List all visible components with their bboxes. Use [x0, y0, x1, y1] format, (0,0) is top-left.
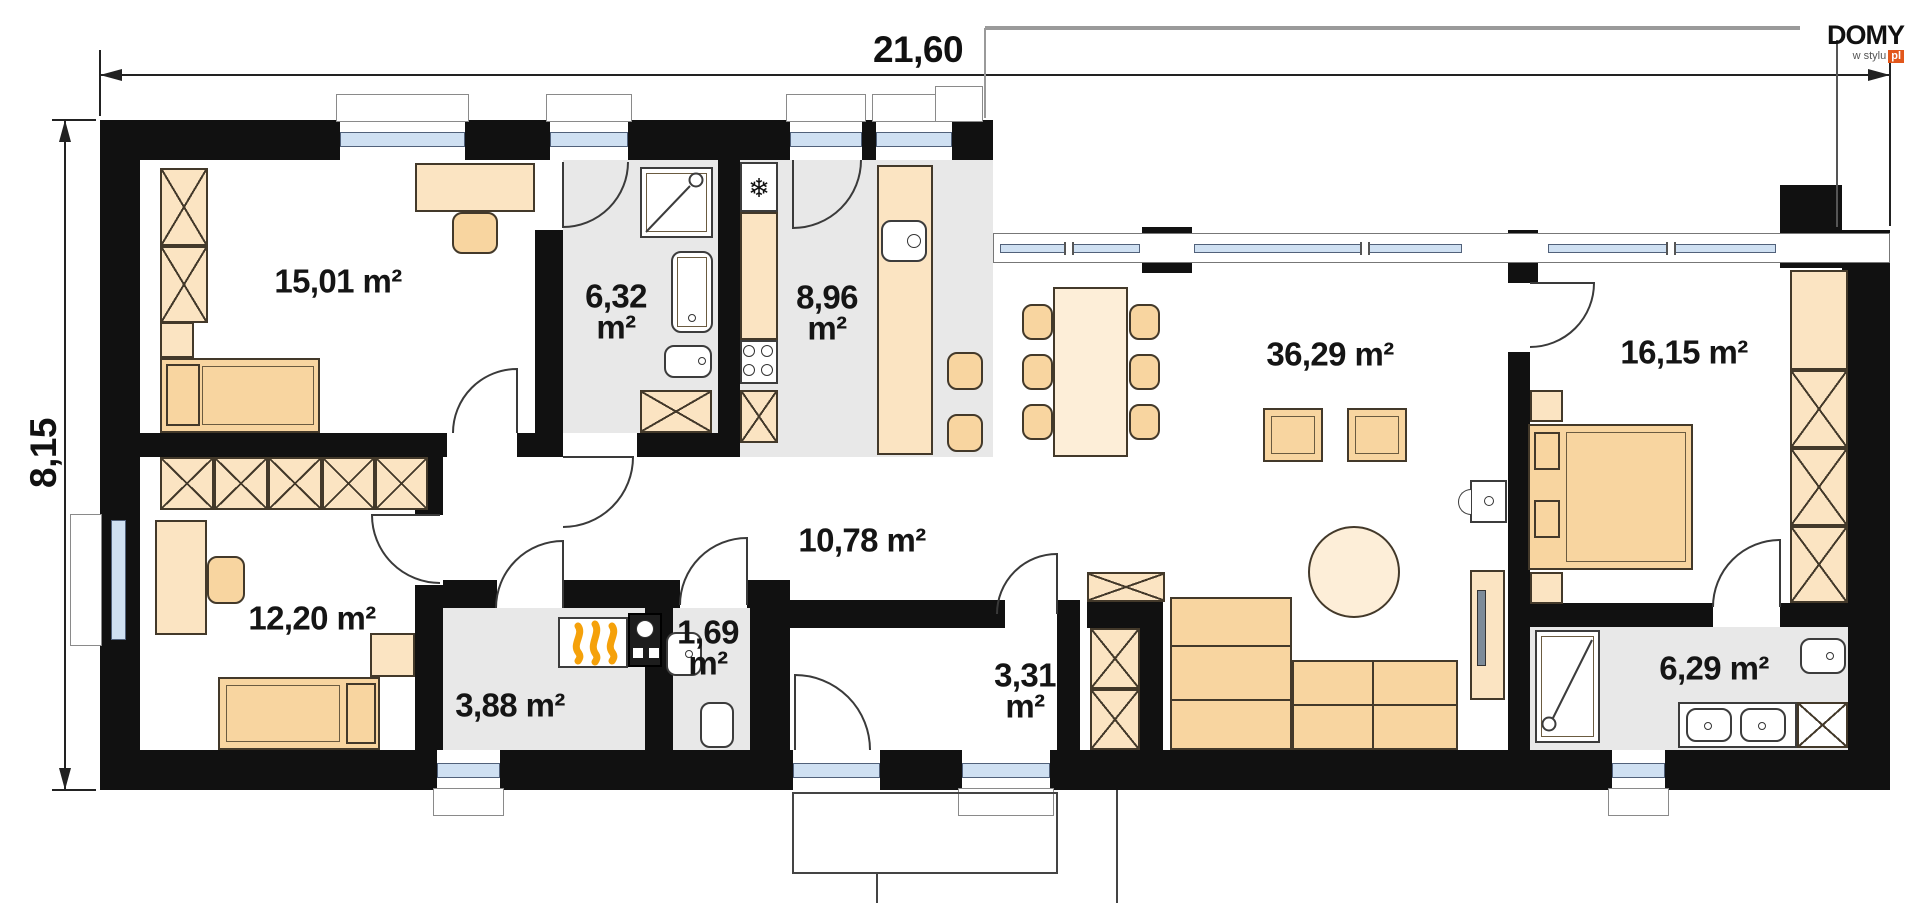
- window-mullion: [1360, 242, 1370, 255]
- wardrobe: [322, 457, 375, 510]
- wall: [628, 120, 790, 160]
- pillow: [166, 364, 200, 426]
- dimension-label-height: 8,15: [23, 418, 65, 488]
- dining-chair: [1129, 354, 1160, 390]
- window-sill: [786, 94, 866, 122]
- window: [550, 132, 628, 147]
- window: [790, 132, 862, 147]
- wardrobe: [375, 457, 428, 510]
- wall: [880, 750, 962, 790]
- bar-stool: [947, 414, 983, 452]
- wall: [718, 160, 740, 457]
- dining-chair: [1022, 404, 1053, 440]
- window-mullion: [1064, 242, 1074, 255]
- desk: [155, 520, 207, 635]
- wall: [790, 600, 1005, 628]
- entry-wardrobe: [1090, 689, 1140, 750]
- wall: [1087, 600, 1163, 628]
- kitchen-cabinet: [740, 390, 778, 443]
- wall: [1665, 750, 1890, 790]
- logo-tagline: w stylu: [1853, 51, 1887, 62]
- wall: [140, 433, 447, 457]
- window: [962, 763, 1050, 778]
- bar-stool: [947, 352, 983, 390]
- room-area-label-hall: 10,78 m²: [798, 524, 925, 555]
- wardrobe: [214, 457, 268, 510]
- window: [111, 520, 126, 640]
- entry-wardrobe: [1090, 628, 1140, 689]
- sofa-cushion-line: [1372, 660, 1374, 750]
- wall: [637, 433, 718, 457]
- wardrobe: [160, 246, 208, 323]
- bed-edge: [226, 685, 340, 742]
- chair: [207, 556, 245, 604]
- wall: [100, 120, 140, 790]
- wardrobe: [268, 457, 322, 510]
- wardrobe: [1790, 370, 1848, 448]
- washer-knob: [633, 648, 643, 658]
- fireplace-front: [1458, 489, 1471, 515]
- bed-edge: [202, 366, 314, 425]
- dining-chair: [1129, 304, 1160, 340]
- nightstand: [370, 633, 415, 677]
- fixture-dot: [743, 345, 755, 357]
- room-area-label-wc: 1,69m²: [677, 617, 739, 680]
- shower-edge: [1541, 636, 1594, 737]
- dimension-label-width: 21,60: [873, 29, 963, 71]
- wardrobe: [160, 168, 208, 246]
- fridge-icon: ❄: [740, 164, 778, 212]
- fixture-dot: [1826, 652, 1834, 660]
- bed-edge: [1566, 432, 1686, 562]
- wall: [1057, 600, 1080, 750]
- window: [793, 763, 880, 778]
- fixture-dot: [761, 345, 773, 357]
- desk: [415, 163, 535, 212]
- dining-chair: [1022, 354, 1053, 390]
- nightstand: [1530, 390, 1563, 422]
- shower-edge: [646, 173, 707, 232]
- nightstand: [1530, 572, 1563, 604]
- bathroom-cabinet: [640, 390, 712, 433]
- window: [437, 763, 500, 778]
- wall: [100, 120, 340, 160]
- fixture-dot: [1758, 722, 1766, 730]
- wall: [1530, 603, 1713, 627]
- armchair-seat: [1271, 416, 1315, 454]
- wardrobe: [1790, 526, 1848, 603]
- wall: [1050, 750, 1612, 790]
- armchair-seat: [1355, 416, 1399, 454]
- kitchen-counter: [740, 212, 778, 340]
- wardrobe: [1790, 270, 1848, 370]
- wall: [750, 608, 790, 750]
- window-sill: [958, 788, 1054, 816]
- window-sill: [433, 788, 504, 816]
- furnace: [558, 617, 628, 668]
- fixture-dot: [1484, 496, 1494, 506]
- wall: [563, 580, 680, 608]
- window: [1612, 763, 1665, 778]
- pillow: [1534, 500, 1560, 538]
- wardrobe: [1790, 448, 1848, 526]
- window: [340, 132, 465, 147]
- fixture-dot: [907, 234, 921, 248]
- wall: [535, 230, 563, 457]
- room-area-label-bedroom-3: 12,20 m²: [248, 602, 375, 633]
- wall: [443, 580, 497, 608]
- wall: [1140, 628, 1163, 750]
- sofa-cushion-line: [1170, 699, 1292, 701]
- window: [1548, 244, 1776, 253]
- dining-table: [1053, 287, 1128, 457]
- washer-knob: [649, 648, 659, 658]
- wall: [415, 585, 443, 750]
- window-sill: [70, 514, 102, 646]
- wall: [1508, 352, 1530, 750]
- tv-screen: [1477, 590, 1486, 666]
- sofa: [1170, 597, 1292, 750]
- pillow: [346, 683, 376, 744]
- fixture-dot: [761, 364, 773, 376]
- window-mullion: [1666, 242, 1676, 255]
- fixture-dot: [1704, 722, 1712, 730]
- window-sill: [546, 94, 632, 122]
- wall: [1780, 603, 1890, 627]
- floor-plan: 15,01 m² 6,32m² 8,96m² 36,29 m² 16,15 m²…: [0, 0, 1920, 903]
- wall: [465, 120, 550, 160]
- porch-outline: [793, 790, 1117, 903]
- sofa-cushion-line: [1170, 645, 1292, 647]
- toilet: [700, 702, 734, 748]
- room-area-label-bedroom-2: 16,15 m²: [1620, 336, 1747, 367]
- entry-cabinet: [1087, 572, 1165, 602]
- rug: [1308, 526, 1400, 618]
- dining-chair: [1022, 304, 1053, 340]
- tv-cabinet: [1470, 570, 1505, 700]
- logo-brand: DOMY: [1827, 22, 1904, 49]
- fixture-dot: [743, 364, 755, 376]
- wall: [500, 750, 793, 790]
- fixture-dot: [688, 314, 696, 322]
- room-area-label-vestibule: 3,31m²: [994, 660, 1056, 723]
- room-area-label-living-room: 36,29 m²: [1266, 338, 1393, 369]
- fixture-dot: [698, 357, 706, 365]
- sofa-cushion-line: [1292, 704, 1458, 706]
- room-area-label-kitchen: 8,96m²: [796, 282, 858, 345]
- bathroom-cabinet: [1797, 702, 1848, 748]
- wall: [952, 120, 993, 160]
- logo-tld-badge: pl: [1888, 50, 1904, 63]
- chair: [452, 212, 498, 254]
- room-area-label-utility: 3,88 m²: [455, 689, 565, 720]
- toilet: [1800, 638, 1846, 674]
- wall: [1848, 230, 1890, 790]
- roof-outline: [985, 28, 1837, 227]
- dining-chair: [1129, 404, 1160, 440]
- window-sill: [935, 86, 983, 122]
- logo-domy: DOMY w stylu pl: [1827, 22, 1904, 63]
- window-sill: [1608, 788, 1669, 816]
- window-sill: [336, 94, 469, 122]
- wall: [517, 433, 563, 457]
- wardrobe: [160, 457, 214, 510]
- wall: [862, 120, 876, 160]
- window: [1194, 244, 1462, 253]
- room-area-label-bedroom-1: 15,01 m²: [274, 265, 401, 296]
- wardrobe: [160, 322, 194, 358]
- window: [876, 132, 952, 147]
- wall: [747, 580, 790, 608]
- room-area-label-bathroom-1: 6,32m²: [585, 281, 647, 344]
- wall: [100, 750, 437, 790]
- room-area-label-bathroom-2: 6,29 m²: [1659, 652, 1769, 683]
- pillow: [1534, 432, 1560, 470]
- kitchen-island: [877, 165, 933, 455]
- washer-drum: [636, 620, 654, 638]
